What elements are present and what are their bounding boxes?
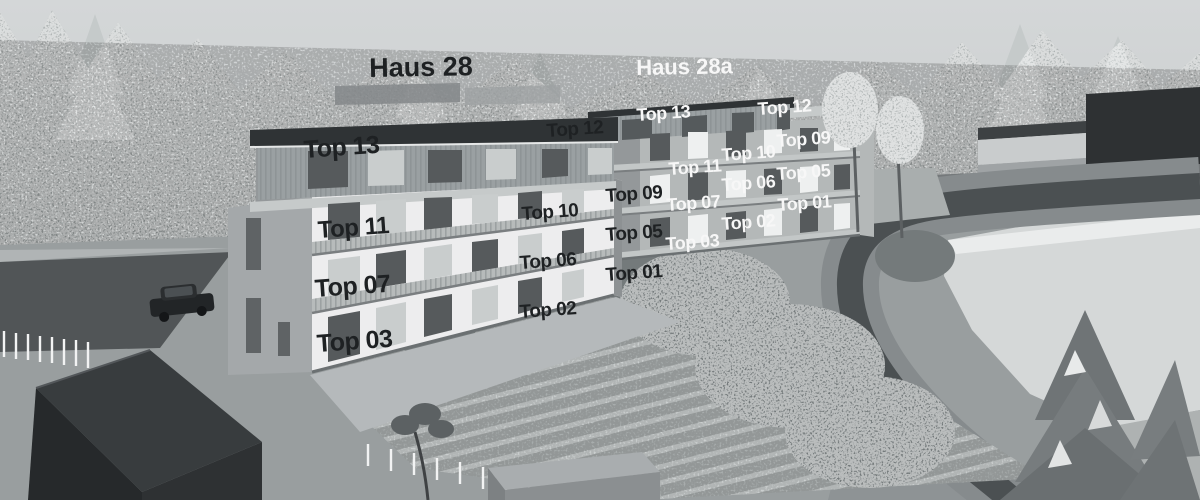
label-haus28-top09: Top 09 — [605, 183, 663, 206]
label-haus28a-top09: Top 09 — [776, 128, 831, 150]
label-haus28-top01: Top 01 — [605, 262, 663, 285]
label-haus28a-top07: Top 07 — [666, 192, 721, 214]
label-haus28-top11: Top 11 — [317, 214, 390, 243]
label-haus28-top03: Top 03 — [316, 327, 393, 357]
label-haus28-top05: Top 05 — [605, 222, 663, 245]
label-haus28-top10: Top 10 — [521, 201, 579, 224]
annotations-overlay: Haus 28 Haus 28a Top 13 Top 12 Top 11 To… — [0, 0, 1200, 500]
label-haus28a-top06: Top 06 — [721, 172, 776, 194]
label-haus28a-top12: Top 12 — [757, 96, 812, 118]
label-haus28a-top13: Top 13 — [636, 102, 691, 124]
label-haus28-top06: Top 06 — [519, 250, 577, 273]
building-title-haus-28: Haus 28 — [369, 53, 473, 82]
label-haus28-top12: Top 12 — [546, 118, 604, 141]
label-haus28a-top02: Top 02 — [721, 211, 776, 233]
label-haus28a-top05: Top 05 — [776, 161, 831, 183]
label-haus28a-top03: Top 03 — [665, 231, 720, 253]
scene-image: Haus 28 Haus 28a Top 13 Top 12 Top 11 To… — [0, 0, 1200, 500]
label-haus28-top07: Top 07 — [314, 272, 391, 302]
label-haus28a-top01: Top 01 — [777, 192, 832, 214]
label-haus28a-top10: Top 10 — [721, 142, 776, 164]
label-haus28a-top11: Top 11 — [668, 156, 722, 178]
label-haus28-top02: Top 02 — [519, 299, 577, 322]
label-haus28-top13: Top 13 — [303, 133, 380, 163]
building-title-haus-28a: Haus 28a — [636, 55, 733, 79]
